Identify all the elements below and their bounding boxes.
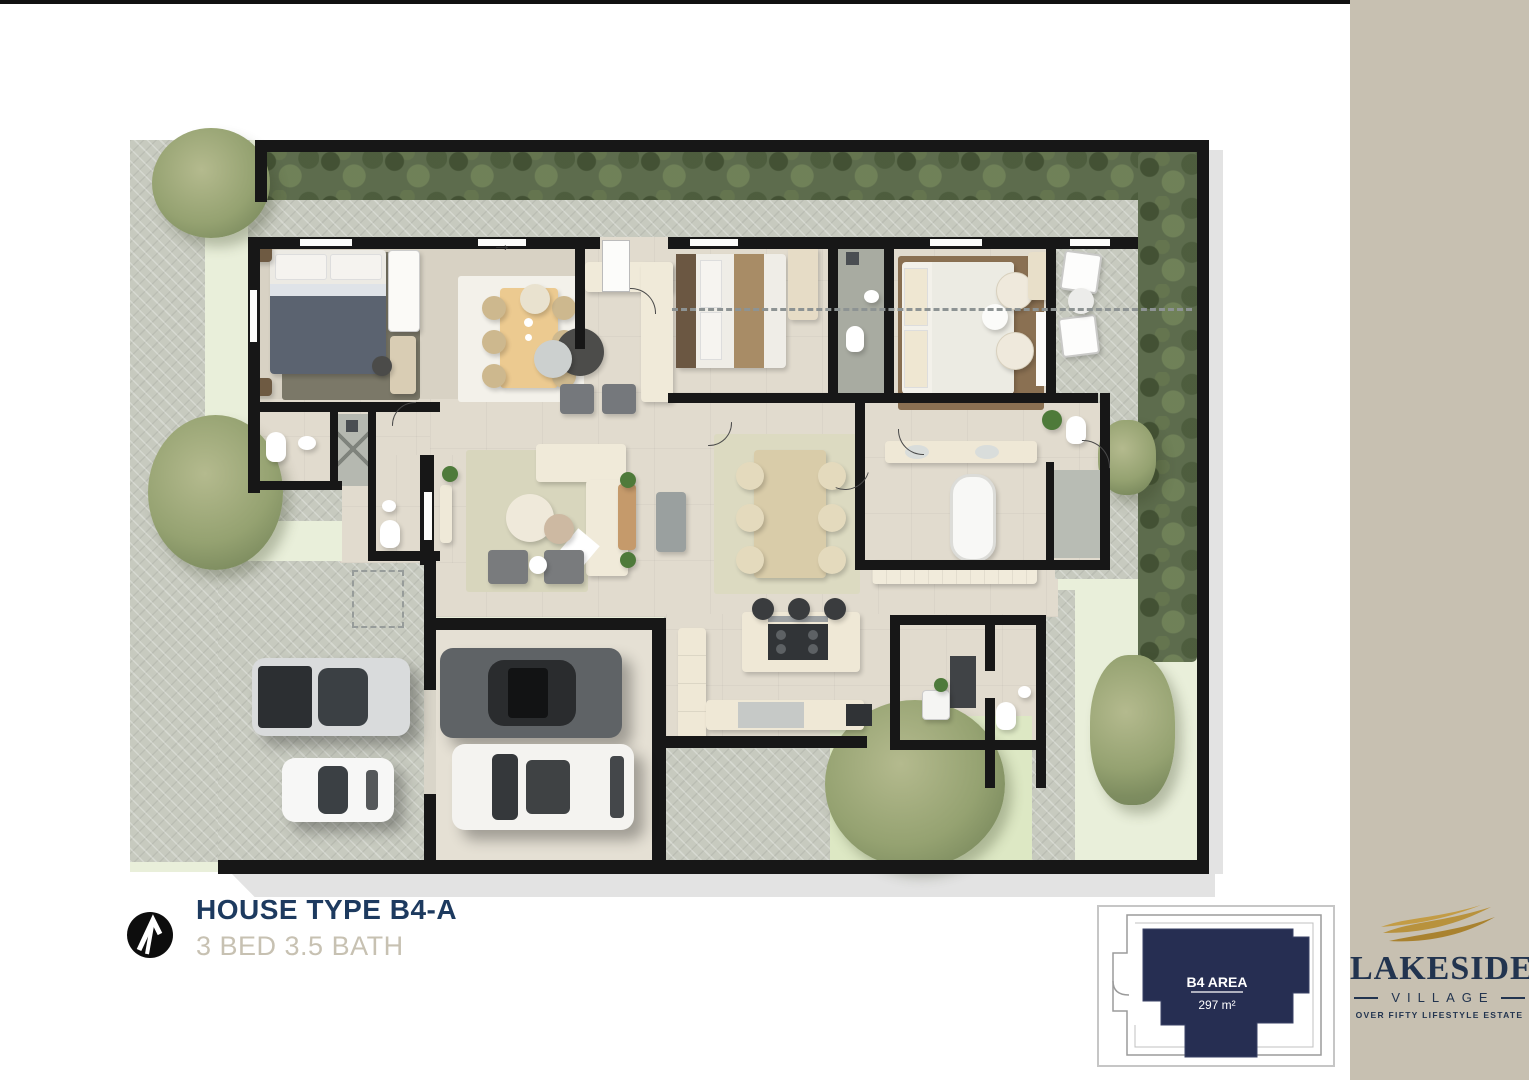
shower1-head	[346, 420, 358, 432]
inset-plan: B4 AREA 297 m²	[1099, 907, 1333, 1065]
wall	[668, 393, 1098, 403]
pickup-truck	[252, 658, 410, 736]
wall	[1036, 748, 1046, 788]
bathroom-plant	[1042, 410, 1062, 430]
front-walkway	[248, 196, 1197, 240]
bathroom-toilet	[1066, 416, 1086, 444]
centerpiece	[525, 334, 532, 341]
wall	[1100, 393, 1110, 570]
hall-cabinet	[656, 492, 686, 552]
wall	[368, 412, 376, 561]
dining-chair	[482, 330, 506, 354]
kitchen-tv	[846, 704, 872, 726]
north-arrow-icon	[127, 912, 173, 958]
powder-toilet	[380, 520, 400, 548]
wall	[1036, 615, 1046, 750]
left-rule	[1354, 997, 1378, 999]
area-inset: B4 AREA 297 m²	[1097, 905, 1335, 1067]
family-sofa-side	[641, 262, 673, 402]
wall	[890, 615, 900, 750]
coffee-table-light	[534, 340, 572, 378]
ensuite2-shower-head	[846, 252, 859, 265]
lounge-round-table	[529, 556, 547, 574]
lounge-armchair	[544, 550, 584, 584]
boundary-wall-top	[255, 140, 1209, 152]
hatchback-car	[282, 758, 394, 822]
freestanding-tub	[950, 474, 996, 562]
boundary-wall-bottom	[218, 860, 1209, 874]
lounge-side-table	[544, 514, 574, 544]
ensuite2-basin	[864, 290, 879, 303]
pouf	[520, 284, 550, 314]
window	[1070, 239, 1110, 246]
plant	[620, 552, 636, 568]
wall	[248, 481, 342, 490]
bedroom2-bed	[676, 254, 786, 368]
brand-tagline: OVER FIFTY LIFESTYLE ESTATE	[1350, 1010, 1529, 1020]
wall	[248, 237, 260, 493]
ensuite2-floor	[838, 247, 886, 395]
boundary-wall-right	[1197, 140, 1209, 874]
bedroom1-bed	[270, 250, 386, 374]
burner	[776, 630, 786, 640]
wall	[1046, 237, 1056, 403]
top-hedge	[255, 146, 1200, 200]
kitchen-pantry	[678, 628, 706, 740]
wall	[668, 237, 1138, 249]
entry-door	[424, 492, 432, 540]
pillow	[700, 312, 722, 360]
tree-left-middle	[148, 415, 283, 570]
rear-window	[366, 770, 378, 810]
dining-chair	[818, 546, 846, 574]
bar-stool	[788, 598, 810, 620]
pillow	[275, 254, 327, 280]
lounge-sofa-back	[536, 444, 626, 482]
wall	[575, 237, 585, 349]
cab-glass	[318, 668, 368, 726]
brand-name: LAKESIDE	[1350, 950, 1529, 988]
dining-chair	[552, 296, 576, 320]
front-door	[602, 240, 630, 292]
wall	[985, 615, 995, 671]
dining-chair	[482, 364, 506, 388]
wall	[655, 736, 867, 748]
cargo-bed	[258, 666, 312, 728]
wave-logo-icon	[1377, 903, 1501, 951]
wall	[855, 560, 1110, 570]
bedroom3-chair	[996, 332, 1034, 370]
armchair	[602, 384, 636, 414]
burner	[776, 644, 786, 654]
pillow	[904, 268, 928, 326]
sunroof	[508, 668, 548, 718]
powder-basin	[382, 500, 396, 512]
duvet	[270, 284, 386, 374]
ensuite1-toilet	[266, 432, 286, 462]
window	[690, 239, 738, 246]
wall	[828, 237, 838, 399]
sheet-fold	[270, 284, 386, 296]
right-hedge	[1138, 152, 1197, 662]
pillow	[904, 330, 928, 388]
page-title: HOUSE TYPE B4-A	[196, 894, 457, 926]
entry-plant	[442, 466, 458, 482]
brand-word-row: VILLAGE	[1350, 990, 1529, 1005]
pillow	[330, 254, 382, 280]
bedroom3-tv-unit	[1036, 312, 1046, 386]
dining-chair	[482, 296, 506, 320]
blanket	[734, 254, 764, 368]
burner	[808, 644, 818, 654]
windshield	[492, 754, 518, 820]
suv-car	[452, 744, 634, 830]
centerpiece	[524, 318, 533, 327]
dining-table	[754, 450, 826, 578]
dining-chair	[736, 462, 764, 490]
wc-toilet	[996, 702, 1016, 730]
ensuite2-toilet	[846, 326, 864, 352]
wall	[330, 412, 338, 484]
sunroof	[526, 760, 570, 814]
window	[300, 239, 352, 246]
ensuite1-basin	[298, 436, 316, 450]
armchair	[560, 384, 594, 414]
entry-console	[440, 485, 452, 543]
rear-window	[610, 756, 624, 818]
porch-outline	[352, 570, 404, 628]
wall	[890, 615, 1044, 625]
boundary-stub-left	[255, 140, 267, 202]
garage-door-opening	[424, 690, 436, 794]
sedan-car	[440, 648, 622, 738]
dining-chair	[818, 504, 846, 532]
headboard	[676, 254, 696, 368]
wall	[884, 237, 894, 399]
right-rule	[1501, 997, 1525, 999]
plant	[620, 472, 636, 488]
bar-stool	[824, 598, 846, 620]
washing-machine	[922, 690, 950, 720]
burner	[808, 630, 818, 640]
page: → HOUSE TYPE B4-A 3 BED 3.5 BATH	[0, 0, 1529, 1080]
counter-doors	[738, 702, 804, 728]
oven-tower	[950, 656, 976, 708]
wall	[890, 740, 1046, 750]
window	[930, 239, 982, 246]
shrub-right-lower	[1090, 655, 1175, 805]
dining-chair	[736, 504, 764, 532]
inset-area-value: 297 m²	[1198, 998, 1235, 1012]
entrance-arrow: →	[492, 234, 512, 257]
page-subtitle: 3 BED 3.5 BATH	[196, 931, 404, 962]
media-console	[618, 484, 636, 550]
plan-shadow-right	[1209, 150, 1223, 874]
bar-stool	[752, 598, 774, 620]
wall	[424, 618, 664, 630]
cooktop	[768, 624, 828, 660]
wall	[1046, 462, 1054, 562]
bedroom1-desk	[390, 336, 416, 394]
car-glass	[318, 766, 348, 814]
pillow	[700, 260, 722, 308]
patio-chair	[1058, 314, 1101, 358]
dining-chair	[736, 546, 764, 574]
desk-chair	[372, 356, 392, 376]
bathroom-shower	[1052, 470, 1104, 558]
wc-basin	[1018, 686, 1031, 698]
window	[250, 290, 257, 342]
bedroom1-wardrobe	[388, 250, 420, 332]
inset-area-label: B4 AREA	[1187, 974, 1248, 990]
lounge-armchair	[488, 550, 528, 584]
basin	[975, 445, 999, 459]
roof-overhang-line	[672, 308, 1192, 311]
tree-left-top	[152, 128, 270, 238]
brand-word: VILLAGE	[1384, 990, 1494, 1005]
scullery-plant	[934, 678, 948, 692]
wall	[985, 748, 995, 788]
